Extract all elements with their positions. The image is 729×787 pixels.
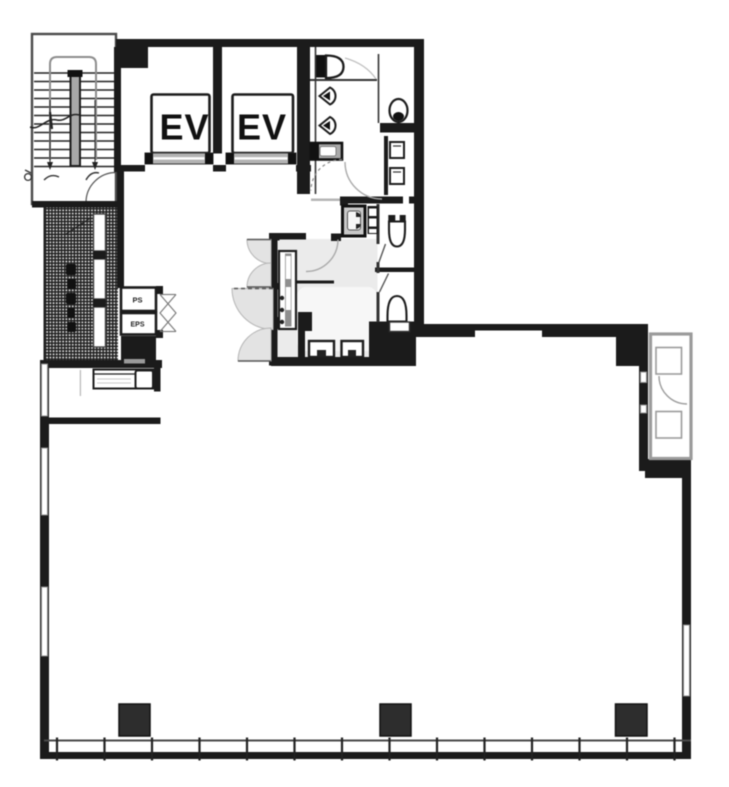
- svg-text:EV: EV: [237, 107, 287, 148]
- svg-text:EV: EV: [159, 107, 209, 148]
- svg-text:PS: PS: [132, 296, 142, 305]
- svg-text:EPS: EPS: [130, 322, 144, 329]
